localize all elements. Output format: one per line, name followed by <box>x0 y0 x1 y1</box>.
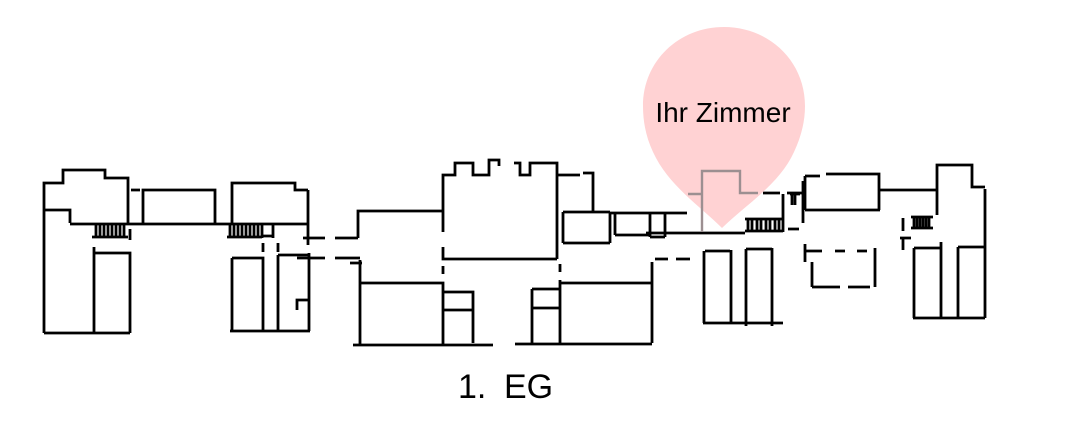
room-center-west <box>350 211 443 283</box>
far-right-building-outline <box>913 165 985 318</box>
central-building-outline <box>443 160 560 274</box>
floor-plan-page: Ihr Zimmer 1. EG <box>0 0 1070 432</box>
floor-caption-label: EG <box>504 368 553 406</box>
right-cluster <box>805 174 937 287</box>
floor-plan-drawing <box>44 160 985 345</box>
rooms-below-pin <box>703 248 783 326</box>
mid-lower-rooms <box>230 243 310 331</box>
corridor-east-of-pin <box>787 181 803 229</box>
room-block-west <box>131 190 215 223</box>
lower-room-south-center <box>515 262 652 344</box>
floor-caption-number: 1. <box>458 368 486 406</box>
floor-plan-figure: Ihr Zimmer 1. EG <box>0 0 1070 432</box>
stairs-right <box>900 217 933 250</box>
stairs-mid <box>227 225 262 237</box>
left-building-outline <box>44 170 130 333</box>
floor-caption: 1. EG <box>458 368 553 406</box>
stairs-left <box>92 225 128 237</box>
pin-label: Ihr Zimmer <box>655 97 790 128</box>
lower-room-southwest <box>353 283 493 345</box>
